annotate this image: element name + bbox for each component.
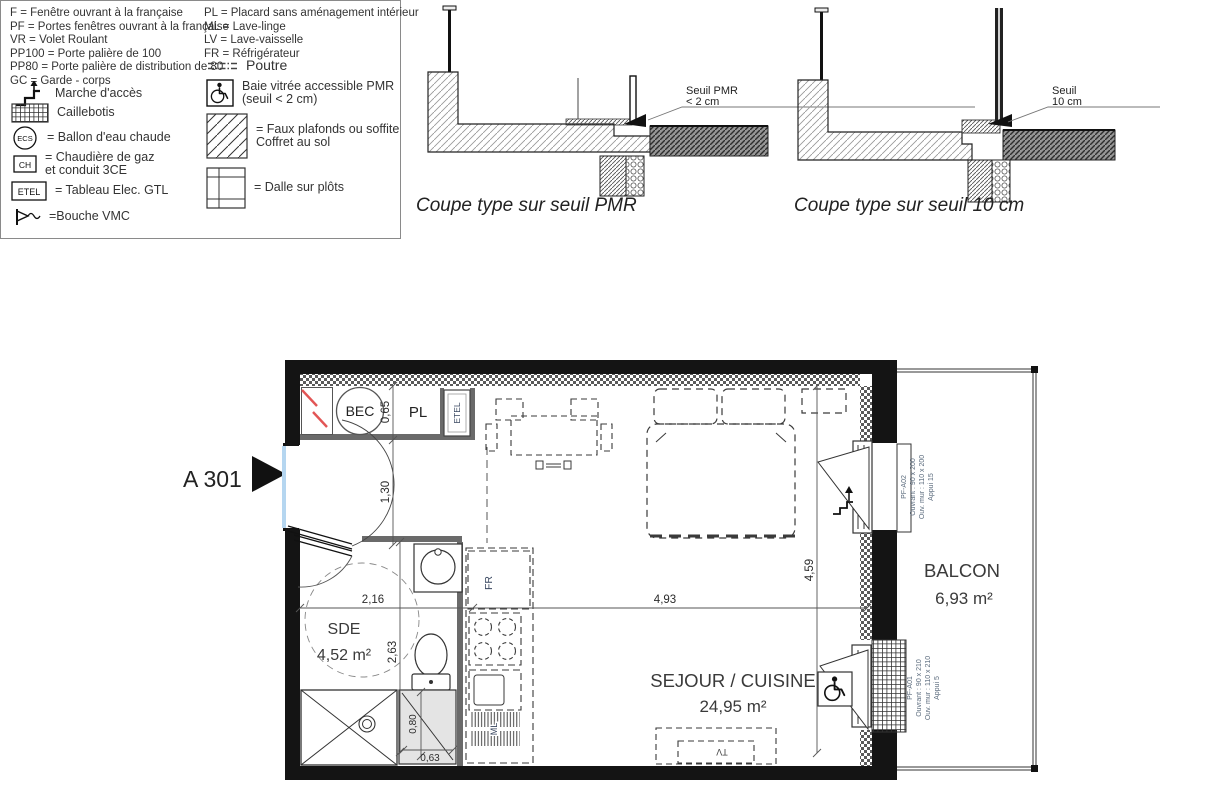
legend-label-pmr: Baie vitrée accessible PMR (seuil < 2 cm… xyxy=(242,80,394,106)
w2-line3: Appui 5 xyxy=(934,676,941,700)
legend-label-vmc: =Bouche VMC xyxy=(49,210,130,224)
abbr-pf: PF = Portes fenêtres ouvrant à la frança… xyxy=(10,21,229,35)
legend-label-pmr-line2: (seuil < 2 cm) xyxy=(242,93,394,106)
architectural-sheet: Seuil PMR < 2 cm Coupe type sur seuil PM… xyxy=(0,0,1212,800)
unit-label: A 301 xyxy=(183,466,242,492)
ecs-icon-text: ECS xyxy=(17,134,32,143)
legend-label-faux-plafond: = Faux plafonds ou soffite Coffret au so… xyxy=(256,123,399,149)
abbr-f: F = Fenêtre ouvrant à la française xyxy=(10,7,229,21)
w1-ref: PF-A02 xyxy=(901,475,908,499)
beam-icon xyxy=(208,60,238,72)
washbasin xyxy=(414,544,462,592)
legend-label-faux-line2: Coffret au sol xyxy=(256,136,399,149)
legend-label-ecs: = Ballon d'eau chaude xyxy=(47,131,171,145)
legend-item-poutre: Poutre xyxy=(208,59,287,73)
section-pmr-drawing: Seuil PMR < 2 cm Coupe type sur seuil PM… xyxy=(416,6,975,216)
sejour-room-area: 24,95 m² xyxy=(699,697,766,716)
shower xyxy=(301,690,397,765)
etel-icon-text: ETEL xyxy=(18,187,41,197)
section-10cm-drawing: Seuil 10 cm Coupe type sur seuil 10 cm xyxy=(794,8,1160,216)
window-pf-a02 xyxy=(818,441,911,533)
legend-label-caillebotis: Caillebotis xyxy=(57,106,115,120)
dim-0-80: 0,80 xyxy=(408,714,419,734)
pl-label: PL xyxy=(409,404,427,421)
section-pmr-title: Coupe type sur seuil PMR xyxy=(416,195,637,216)
legend-item-pmr: Baie vitrée accessible PMR (seuil < 2 cm… xyxy=(206,79,394,107)
abbr-pp80: PP80 = Porte palière de distribution de … xyxy=(10,61,229,75)
callout-seuil-pmr-line2: < 2 cm xyxy=(686,96,719,108)
section-10cm-title: Coupe type sur seuil 10 cm xyxy=(794,195,1024,216)
bec-label: BEC xyxy=(346,403,375,419)
duct-shaft xyxy=(302,388,333,435)
dining-set xyxy=(486,399,612,469)
sde-room-area: 4,52 m² xyxy=(317,647,372,664)
sink-outline xyxy=(469,670,521,710)
abbr-pl: PL = Placard sans aménagement intérieur xyxy=(204,7,419,21)
floor-plan: A 301 xyxy=(183,360,1038,780)
abbr-lv: LV = Lave-vaisselle xyxy=(204,34,419,48)
legend-label-ch-line2: et conduit 3CE xyxy=(45,164,154,177)
entry-door-threshold xyxy=(282,446,286,528)
legend-item-ch: CH = Chaudière de gaz et conduit 3CE xyxy=(13,151,154,177)
legend-item-caillebotis: Caillebotis xyxy=(11,103,115,123)
legend-label-marche: Marche d'accès xyxy=(55,87,142,101)
legend-item-ecs: ECS = Ballon d'eau chaude xyxy=(11,125,171,151)
dim-0-63: 0,63 xyxy=(420,753,440,764)
legend-item-faux-plafond: = Faux plafonds ou soffite Coffret au so… xyxy=(206,113,399,159)
wheelchair-icon xyxy=(206,79,234,107)
legend-item-vmc: =Bouche VMC xyxy=(13,207,130,227)
ch-icon-text: CH xyxy=(19,160,31,170)
slab-icon xyxy=(206,167,246,209)
callout-seuil-10cm-line2: 10 cm xyxy=(1052,96,1082,108)
abbr-pp100: PP100 = Porte palière de 100 xyxy=(10,48,229,62)
legend-label-ch: = Chaudière de gaz et conduit 3CE xyxy=(45,151,154,177)
sejour-room-name: SEJOUR / CUISINE xyxy=(650,670,816,691)
balcon-room-area: 6,93 m² xyxy=(935,589,993,608)
w1-line2: Ouv. mur : 110 x 200 xyxy=(919,455,926,519)
balcon-room-name: BALCON xyxy=(924,560,1000,581)
etel-box: ETEL xyxy=(444,390,470,436)
abbr-ml: ML = Lave-linge xyxy=(204,21,419,35)
dim-4-93: 4,93 xyxy=(654,594,676,606)
ch-icon: CH xyxy=(13,155,37,173)
w1-line1: Ouvrant : 90 x 200 xyxy=(910,458,917,516)
toilet xyxy=(412,634,450,690)
caillebotis-icon xyxy=(11,103,49,123)
entrance-arrow-icon xyxy=(252,456,286,492)
ecs-icon: ECS xyxy=(11,125,39,151)
legend-item-dalle: = Dalle sur plôts xyxy=(206,167,344,209)
sde-door xyxy=(294,535,352,587)
etel-label: ETEL xyxy=(452,402,462,424)
w2-line1: Ouvrant : 90 x 210 xyxy=(916,659,923,717)
hob-outline xyxy=(469,613,521,665)
ml-label: ML xyxy=(489,723,499,736)
wheelchair-access-icon xyxy=(818,672,852,706)
hatch-icon xyxy=(206,113,248,159)
fridge-outline xyxy=(468,551,530,609)
dim-2-16: 2,16 xyxy=(362,594,384,606)
window-pf-a01 xyxy=(818,640,906,732)
legend-item-etel: ETEL = Tableau Elec. GTL xyxy=(11,181,168,201)
tv-cabinet xyxy=(656,728,776,764)
kitchen-drainer: ML xyxy=(470,712,520,746)
legend-label-poutre: Poutre xyxy=(246,59,287,73)
legend-box: F = Fenêtre ouvrant à la française PF = … xyxy=(0,0,401,239)
sde-room-name: SDE xyxy=(328,621,361,638)
kitchen-strip xyxy=(466,548,533,763)
legend-abbreviations-left: F = Fenêtre ouvrant à la française PF = … xyxy=(10,7,229,88)
dim-0-65: 0,65 xyxy=(380,401,392,423)
fr-label: FR xyxy=(483,576,495,590)
w2-line2: Ouv. mur : 110 x 210 xyxy=(925,656,932,720)
nightstand-outline xyxy=(802,389,846,413)
legend-label-etel: = Tableau Elec. GTL xyxy=(55,184,168,198)
dim-2-63: 2,63 xyxy=(387,641,399,663)
dim-1-30: 1,30 xyxy=(380,481,392,503)
tv-label: TV xyxy=(716,747,728,757)
legend-label-dalle: = Dalle sur plôts xyxy=(254,181,344,195)
window-pf-a01-annotation: PF-A01 Ouvrant : 90 x 210 Ouv. mur : 110… xyxy=(907,656,941,720)
etel-icon: ETEL xyxy=(11,181,47,201)
vmc-icon xyxy=(13,207,41,227)
legend-abbreviations-right: PL = Placard sans aménagement intérieur … xyxy=(204,7,419,61)
w2-ref: PF-A01 xyxy=(907,676,914,700)
abbr-vr: VR = Volet Roulant xyxy=(10,34,229,48)
dim-4-59: 4,59 xyxy=(804,559,816,581)
w1-line3: Appui 15 xyxy=(928,473,935,501)
bed xyxy=(647,389,846,538)
